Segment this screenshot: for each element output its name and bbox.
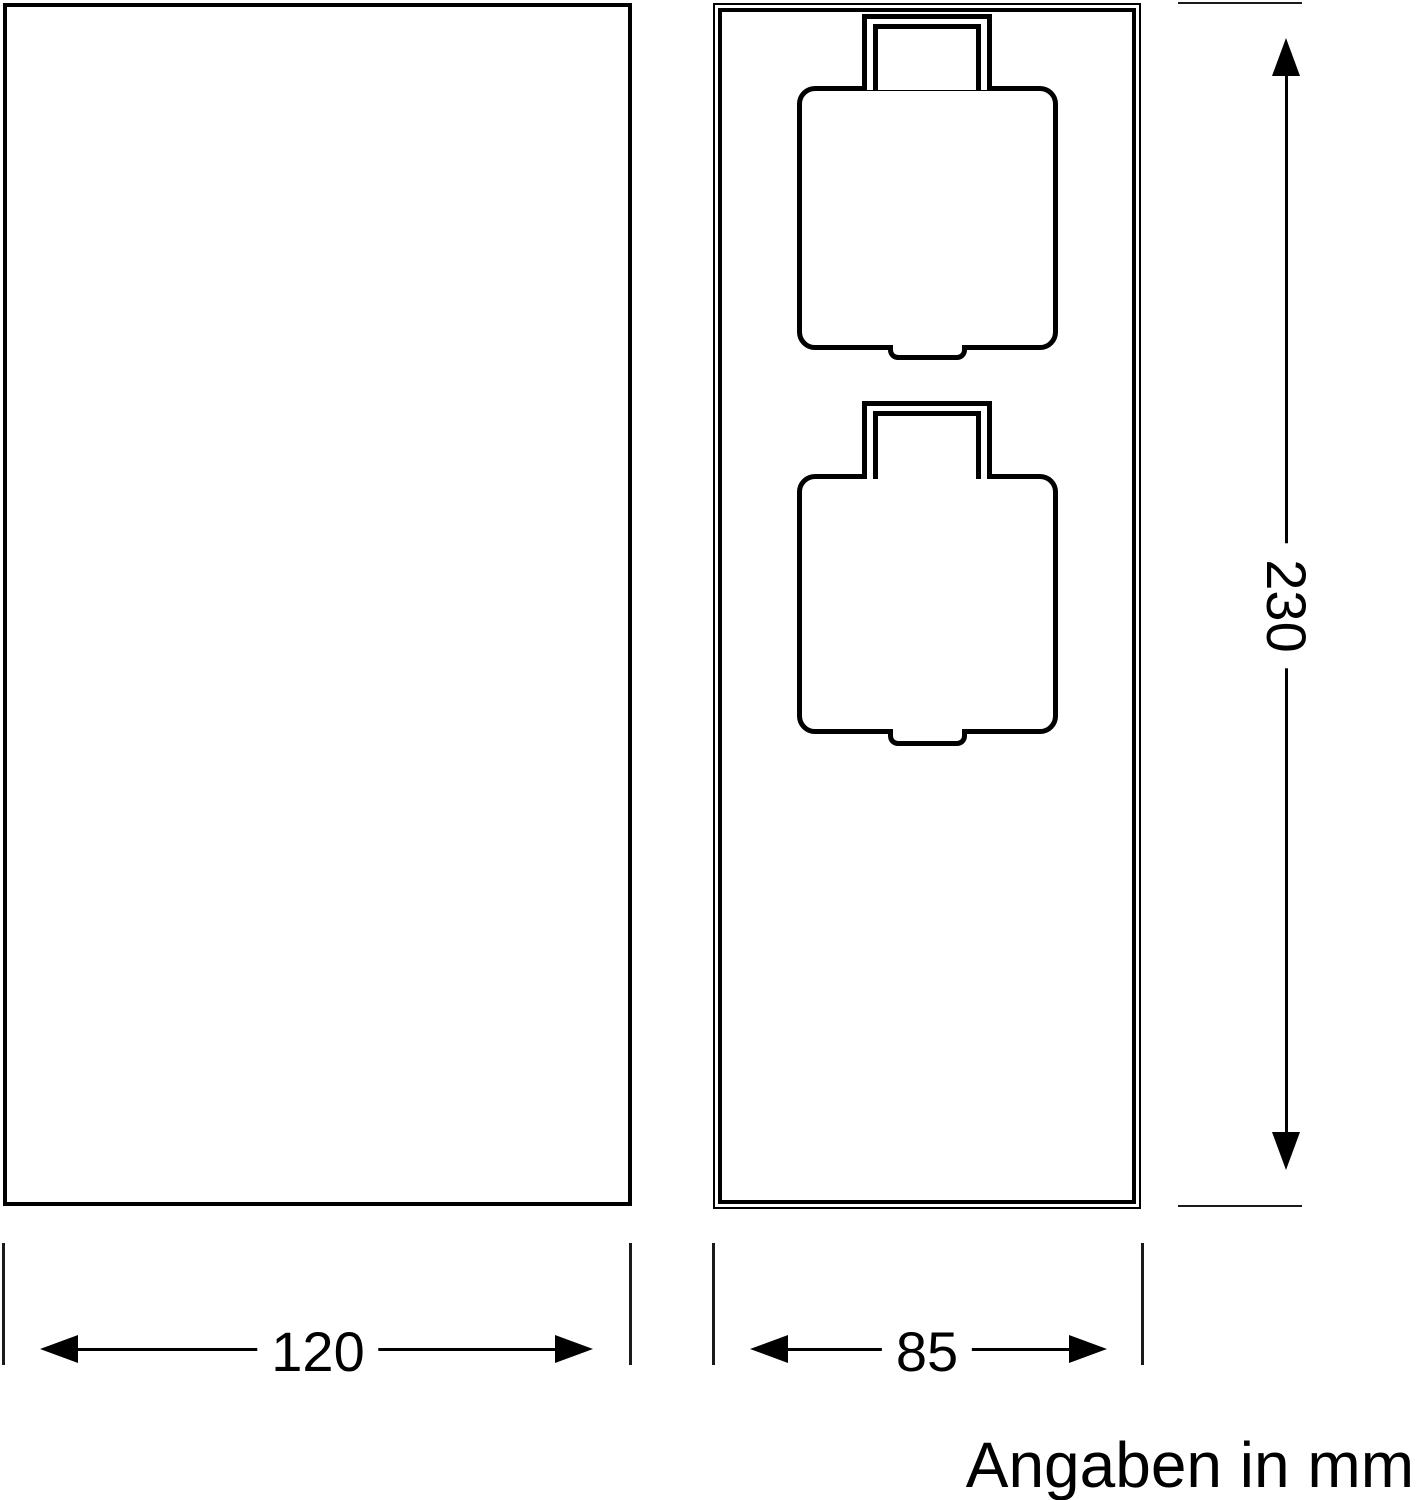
dim-side-width-extension-right <box>1141 1243 1144 1365</box>
dim-side-width-extension-left <box>712 1243 715 1365</box>
socket-1-cover <box>797 86 1058 350</box>
dim-side-width-arrow-left <box>750 1335 788 1363</box>
front-view-outline <box>3 3 632 1206</box>
dim-side-width-label: 85 <box>882 1321 972 1383</box>
dim-height-arrow-bottom <box>1272 1132 1300 1170</box>
dim-front-width-extension-right <box>629 1243 632 1365</box>
units-caption: Angaben in mm <box>966 1432 1414 1499</box>
dim-height-extension-bottom <box>1178 1205 1302 1207</box>
dim-front-width-extension-left <box>2 1243 5 1365</box>
dim-height-label: 230 <box>1255 543 1317 668</box>
dim-front-width-arrow-left <box>40 1335 78 1363</box>
socket-2-hinge-inner <box>873 411 981 479</box>
socket-2-cover <box>797 474 1058 734</box>
dim-front-width-arrow-right <box>555 1335 593 1363</box>
dim-height-arrow-top <box>1272 38 1300 76</box>
dim-height-extension-top <box>1178 2 1302 4</box>
dim-front-width-label: 120 <box>257 1321 378 1383</box>
dim-side-width-arrow-right <box>1069 1335 1107 1363</box>
socket-1-hinge-inner <box>873 24 981 90</box>
socket-2-latch-tab <box>888 729 967 746</box>
technical-drawing-canvas: 230 120 85 Angaben in mm <box>0 0 1418 1500</box>
socket-1-latch-tab <box>888 345 967 360</box>
